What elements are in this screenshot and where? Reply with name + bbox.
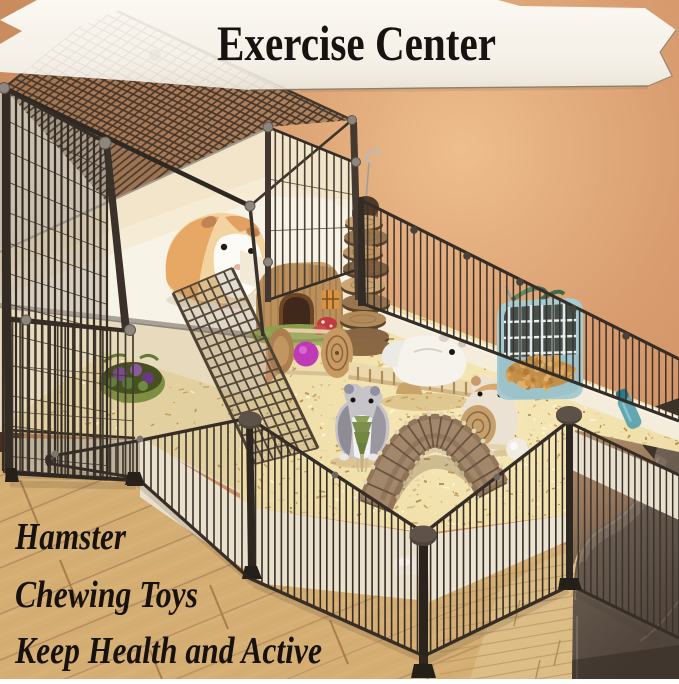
svg-text:Hamster: Hamster — [14, 516, 127, 558]
svg-text:Keep Health and Active: Keep Health and Active — [14, 630, 322, 672]
svg-text:Chewing Toys: Chewing Toys — [15, 574, 198, 616]
svg-text:Exercise Center: Exercise Center — [217, 15, 496, 71]
